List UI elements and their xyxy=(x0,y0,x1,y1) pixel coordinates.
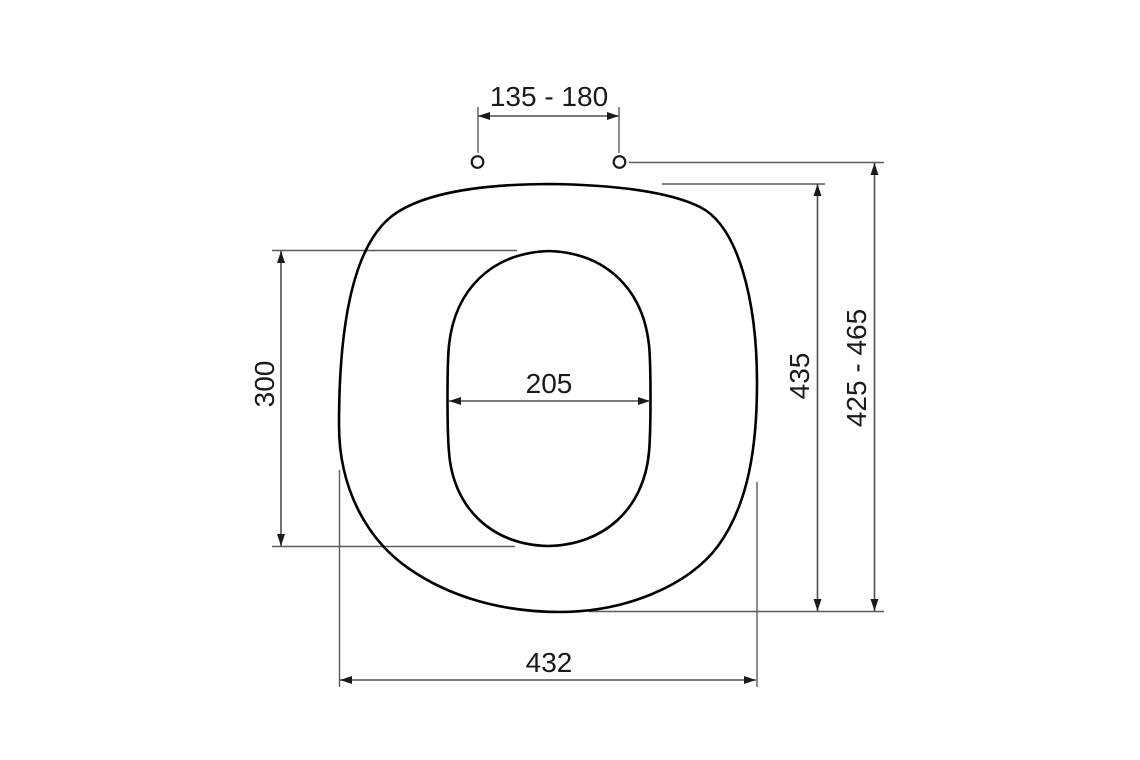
dimension-seat-depth: 435 xyxy=(784,184,822,611)
arrowhead-right xyxy=(744,676,756,684)
dimension-label-cutout-width: 205 xyxy=(526,368,573,399)
dimension-label-seat-depth: 435 xyxy=(784,353,815,400)
technical-drawing-canvas: 135 - 180 300 205 435 425 - 465 432 xyxy=(0,0,1140,760)
arrowhead-right xyxy=(638,397,650,405)
dimension-cutout-width: 205 xyxy=(449,368,650,405)
arrowhead-top xyxy=(871,163,879,175)
dimension-overall-depth-range: 425 - 465 xyxy=(841,163,879,611)
arrowhead-left xyxy=(340,676,352,684)
arrowhead-top xyxy=(277,251,285,263)
arrowhead-left xyxy=(449,397,461,405)
dimension-label-seat-width: 432 xyxy=(526,647,573,678)
dimension-seat-width: 432 xyxy=(340,647,756,684)
dimension-hinge-hole-spacing: 135 - 180 xyxy=(478,81,619,120)
hinge-hole-left xyxy=(472,156,484,168)
arrowhead-top xyxy=(814,184,822,196)
dimension-label-overall-depth: 425 - 465 xyxy=(841,309,872,427)
toilet-seat-dimension-diagram: 135 - 180 300 205 435 425 - 465 432 xyxy=(0,0,1140,760)
dimension-label-cutout-length: 300 xyxy=(249,361,280,408)
arrowhead-bottom xyxy=(277,534,285,546)
arrowhead-left xyxy=(478,112,490,120)
dimension-cutout-length: 300 xyxy=(249,251,285,546)
arrowhead-bottom xyxy=(871,599,879,611)
hinge-hole-right xyxy=(614,156,626,168)
arrowhead-right xyxy=(607,112,619,120)
dimension-label-hinge-spacing: 135 - 180 xyxy=(490,81,608,112)
arrowhead-bottom xyxy=(814,599,822,611)
